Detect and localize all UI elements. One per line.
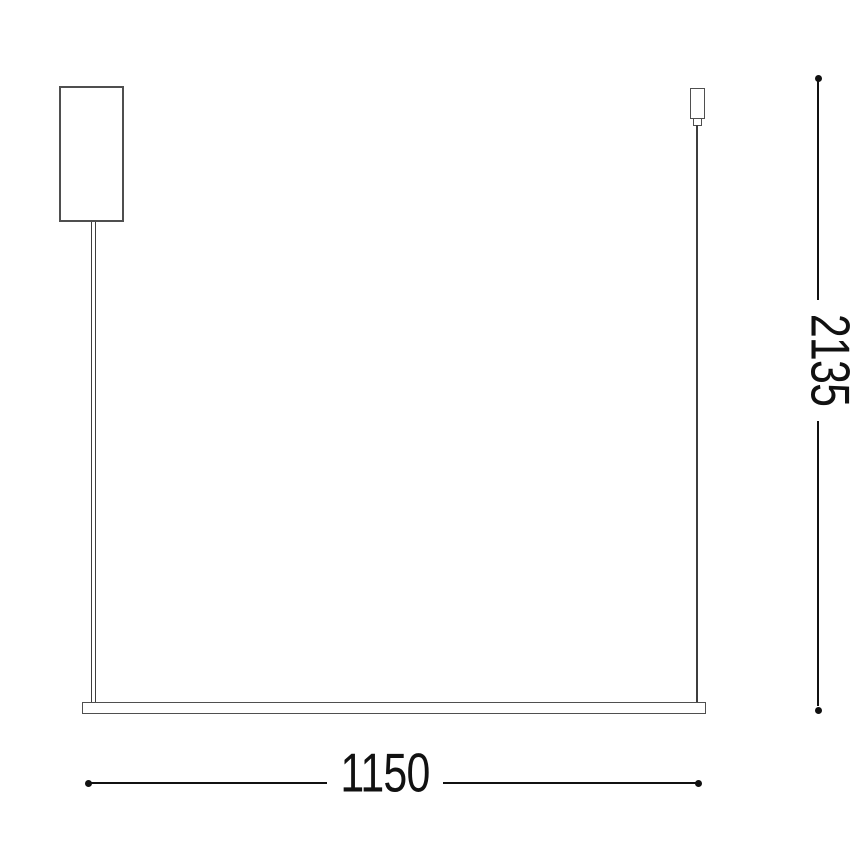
width-dimension-line-left xyxy=(90,782,327,784)
right-suspension-cable xyxy=(696,125,699,703)
technical-drawing: 1150 2135 xyxy=(0,0,868,868)
cable-gripper-body xyxy=(690,88,705,119)
left-suspension-cable xyxy=(91,222,96,702)
height-dimension-bottom-dot xyxy=(815,707,822,714)
height-dimension-label: 2135 xyxy=(803,314,858,406)
width-dimension-right-dot xyxy=(695,780,702,787)
height-dimension-line-bottom xyxy=(817,421,819,706)
ceiling-canopy-box xyxy=(59,86,124,222)
height-dimension-line-top xyxy=(817,81,819,300)
linear-light-bar xyxy=(82,702,706,714)
width-dimension-line-right xyxy=(443,782,696,784)
width-dimension-label: 1150 xyxy=(340,746,429,801)
